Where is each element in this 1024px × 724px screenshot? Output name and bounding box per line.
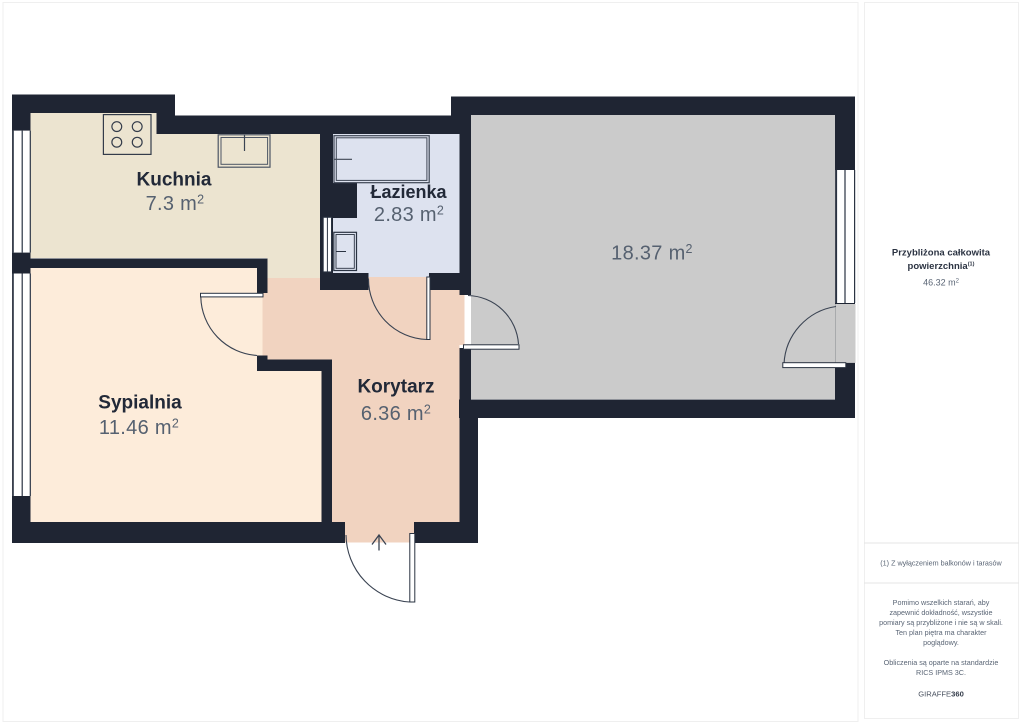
svg-text:46.32 m2: 46.32 m2 (923, 278, 960, 288)
svg-text:Przybliżona całkowita: Przybliżona całkowita (892, 248, 991, 259)
svg-text:GIRAFFE360: GIRAFFE360 (918, 690, 964, 699)
svg-text:zapewnić dokładność, wszystkie: zapewnić dokładność, wszystkie (889, 608, 992, 617)
svg-text:Łazienka: Łazienka (370, 182, 447, 202)
svg-text:7.3 m2: 7.3 m2 (146, 193, 205, 216)
svg-text:11.46 m2: 11.46 m2 (99, 416, 179, 439)
svg-text:Obliczenia są oparte na standa: Obliczenia są oparte na standardzie (884, 658, 999, 667)
svg-text:Pomimo wszelkich starań, aby: Pomimo wszelkich starań, aby (893, 598, 990, 607)
svg-text:Korytarz: Korytarz (357, 377, 434, 398)
svg-text:powierzchnia(1): powierzchnia(1) (908, 261, 975, 272)
svg-text:pomiary są przybliżone i nie s: pomiary są przybliżone i nie są w skali. (879, 618, 1003, 627)
svg-text:Kuchnia: Kuchnia (137, 170, 212, 191)
svg-text:6.36 m2: 6.36 m2 (361, 403, 431, 426)
svg-text:Sypialnia: Sypialnia (98, 393, 182, 414)
svg-text:(1) Z wyłączeniem balkonów i t: (1) Z wyłączeniem balkonów i tarasów (880, 559, 1002, 568)
svg-text:2.83 m2: 2.83 m2 (374, 204, 444, 227)
svg-text:poglądowy.: poglądowy. (923, 638, 959, 647)
svg-text:RICS IPMS 3C.: RICS IPMS 3C. (916, 668, 966, 677)
svg-text:18.37 m2: 18.37 m2 (611, 242, 693, 265)
svg-text:Ten plan piętra ma charakter: Ten plan piętra ma charakter (895, 628, 987, 637)
